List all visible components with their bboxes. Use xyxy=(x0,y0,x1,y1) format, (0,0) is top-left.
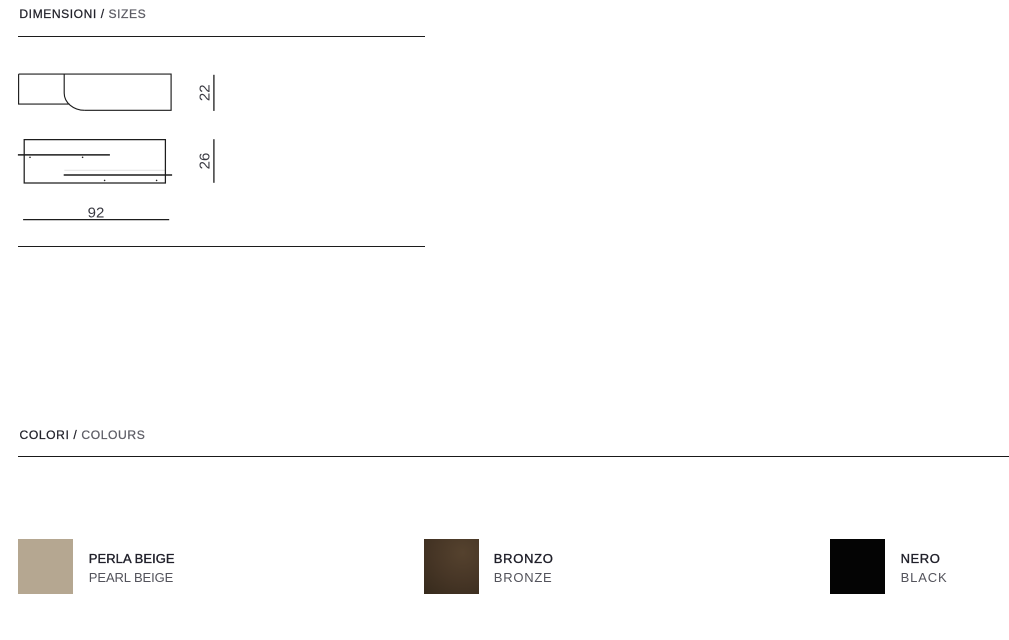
svg-text:22: 22 xyxy=(197,84,214,101)
svg-text:26: 26 xyxy=(197,153,214,170)
svg-text:92: 92 xyxy=(88,205,105,222)
